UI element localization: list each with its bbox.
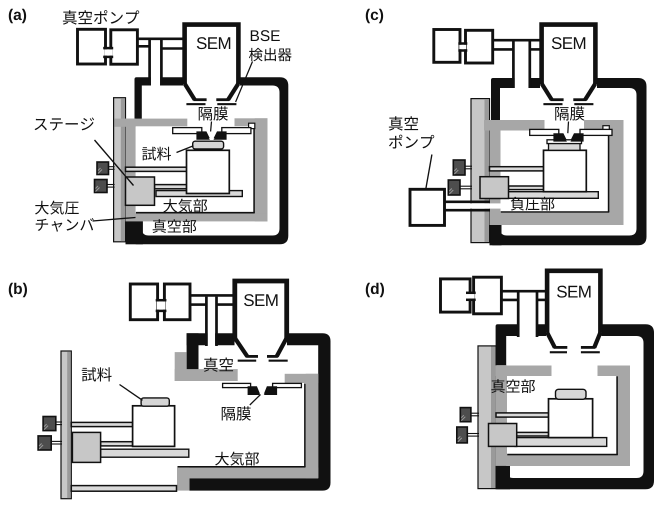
svg-text:(d): (d)	[365, 281, 385, 298]
svg-text:SEM: SEM	[243, 291, 278, 310]
svg-text:(b): (b)	[8, 281, 28, 298]
svg-text:SEM: SEM	[551, 34, 586, 53]
svg-text:SEM: SEM	[556, 282, 591, 301]
svg-text:(a): (a)	[8, 7, 27, 24]
svg-text:BSE: BSE	[250, 28, 281, 45]
svg-text:SEM: SEM	[196, 34, 231, 53]
svg-text:(c): (c)	[365, 7, 384, 24]
